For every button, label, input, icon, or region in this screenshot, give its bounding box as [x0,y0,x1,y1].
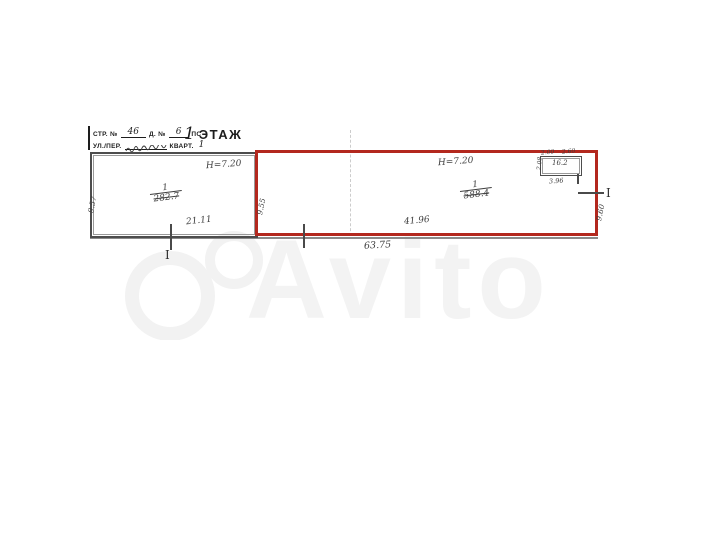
highlighted-room-depth-right-dim: 9.60 [594,203,606,221]
small-room-area: 16.2 [552,159,568,167]
small-room-top-right-dim: 2.60 [562,147,576,155]
highlighted-room-number-area: 1 588.4 [459,179,493,202]
section-tick-middle [303,224,305,248]
floor-number: 1 [184,124,195,144]
small-room-depth-dim: 2.08 [536,157,544,171]
left-room-number-area: 1 282.7 [149,182,183,205]
quarter-label: КВАРТ. [170,143,194,150]
building-label: СТР. № [93,131,118,138]
section-tick-right [578,192,604,194]
building-value: 46 [121,128,146,138]
handwritten-street-name [125,141,167,150]
section-tick-left [170,224,172,250]
small-room-width-dim: 3.96 [549,177,564,186]
small-room-top-left-dim: 2.00 [541,148,555,156]
overall-width-dim: 63.75 [364,239,392,251]
house-label: Д. № [149,131,166,138]
street-label: УЛ./ПЕР. [93,143,122,150]
floor-label: ЭТАЖ [199,127,243,142]
section-marker-right: I [606,186,611,200]
small-room-tick [577,174,579,184]
avito-watermark-text: Avito [246,224,552,336]
section-marker-left: I [165,248,170,262]
floor-title: 1 ЭТАЖ [184,124,242,144]
blueprint-page: Avito СТР. № 46 Д. № 6 ПС УЛ./ПЕР. КВАРТ… [0,0,720,540]
